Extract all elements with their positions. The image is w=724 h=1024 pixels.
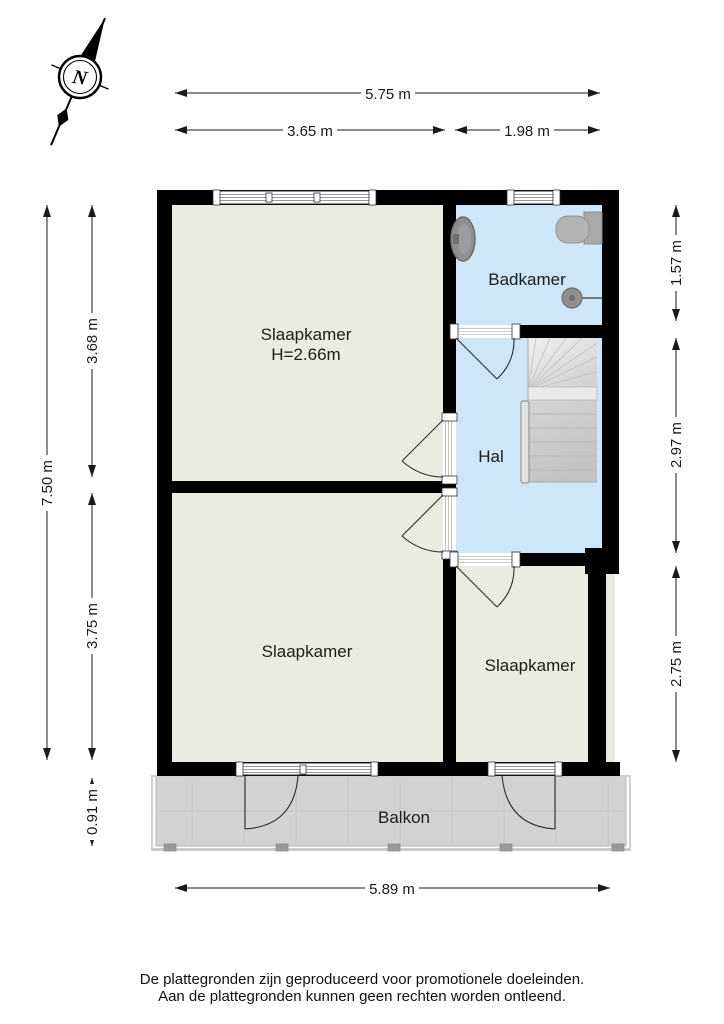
floorplan-drawing: Slaapkamer H=2.66m Badkamer Hal Slaapkam… <box>0 0 724 1024</box>
svg-text:5.89 m: 5.89 m <box>369 881 415 898</box>
svg-text:3.75 m: 3.75 m <box>84 603 101 649</box>
label-bedroom-bottom-right: Slaapkamer <box>485 656 576 675</box>
sink-tap <box>453 234 459 244</box>
label-bedroom-top: Slaapkamer <box>261 325 352 344</box>
dimension-bottom-total: 5.89 m <box>175 879 610 898</box>
dimension-left-lower-section: 3.75 m <box>83 493 101 760</box>
svg-text:3.68 m: 3.68 m <box>84 318 101 364</box>
staircase-landing-edge <box>528 387 597 400</box>
compass-south-diamond <box>53 106 72 129</box>
svg-text:2.75 m: 2.75 m <box>668 641 685 687</box>
dimension-top-right-section: 1.98 m <box>455 121 600 140</box>
label-bathroom: Badkamer <box>488 270 566 289</box>
dimension-balcony-depth: 0.91 m <box>84 778 101 846</box>
disclaimer: De plattegronden zijn geproduceerd voor … <box>0 971 724 1005</box>
svg-text:1.57 m: 1.57 m <box>668 240 685 286</box>
dimension-left-total: 7.50 m <box>38 205 56 760</box>
wall-right-lower <box>588 560 606 776</box>
window-bedroom-top <box>213 190 376 205</box>
label-hallway: Hal <box>478 447 504 466</box>
disclaimer-line-1: De plattegronden zijn geproduceerd voor … <box>0 971 724 988</box>
svg-text:3.65 m: 3.65 m <box>287 123 333 140</box>
label-balcony: Balkon <box>378 808 430 827</box>
wall-bedroom-divider <box>157 481 456 493</box>
window-door-balcony-right <box>488 762 562 776</box>
svg-text:7.50 m: 7.50 m <box>39 460 56 506</box>
svg-text:1.98 m: 1.98 m <box>504 123 550 140</box>
dimension-right-lower-section: 2.75 m <box>667 566 685 762</box>
svg-text:5.75 m: 5.75 m <box>365 86 411 103</box>
window-door-balcony-left <box>236 762 378 776</box>
svg-text:2.97 m: 2.97 m <box>668 422 685 468</box>
toilet-bowl <box>556 216 589 243</box>
dimension-top-left-section: 3.65 m <box>175 121 445 140</box>
window-bathroom <box>507 190 560 205</box>
compass-rose: N <box>23 6 134 157</box>
svg-text:0.91 m: 0.91 m <box>84 789 101 835</box>
label-bedroom-top-height: H=2.66m <box>271 345 340 364</box>
dimension-top-total: 5.75 m <box>175 84 600 103</box>
staircase-handrail <box>521 401 529 483</box>
dimension-left-upper-section: 3.68 m <box>83 205 101 477</box>
floorplan-page: Slaapkamer H=2.66m Badkamer Hal Slaapkam… <box>0 0 724 1024</box>
dimension-right-upper-section: 1.57 m <box>667 205 685 321</box>
staircase <box>521 338 597 483</box>
label-bedroom-bottom-left: Slaapkamer <box>262 642 353 661</box>
dimension-right-middle-section: 2.97 m <box>667 338 685 553</box>
disclaimer-line-2: Aan de plattegronden kunnen geen rechten… <box>0 988 724 1005</box>
wall-right-upper <box>602 190 619 572</box>
